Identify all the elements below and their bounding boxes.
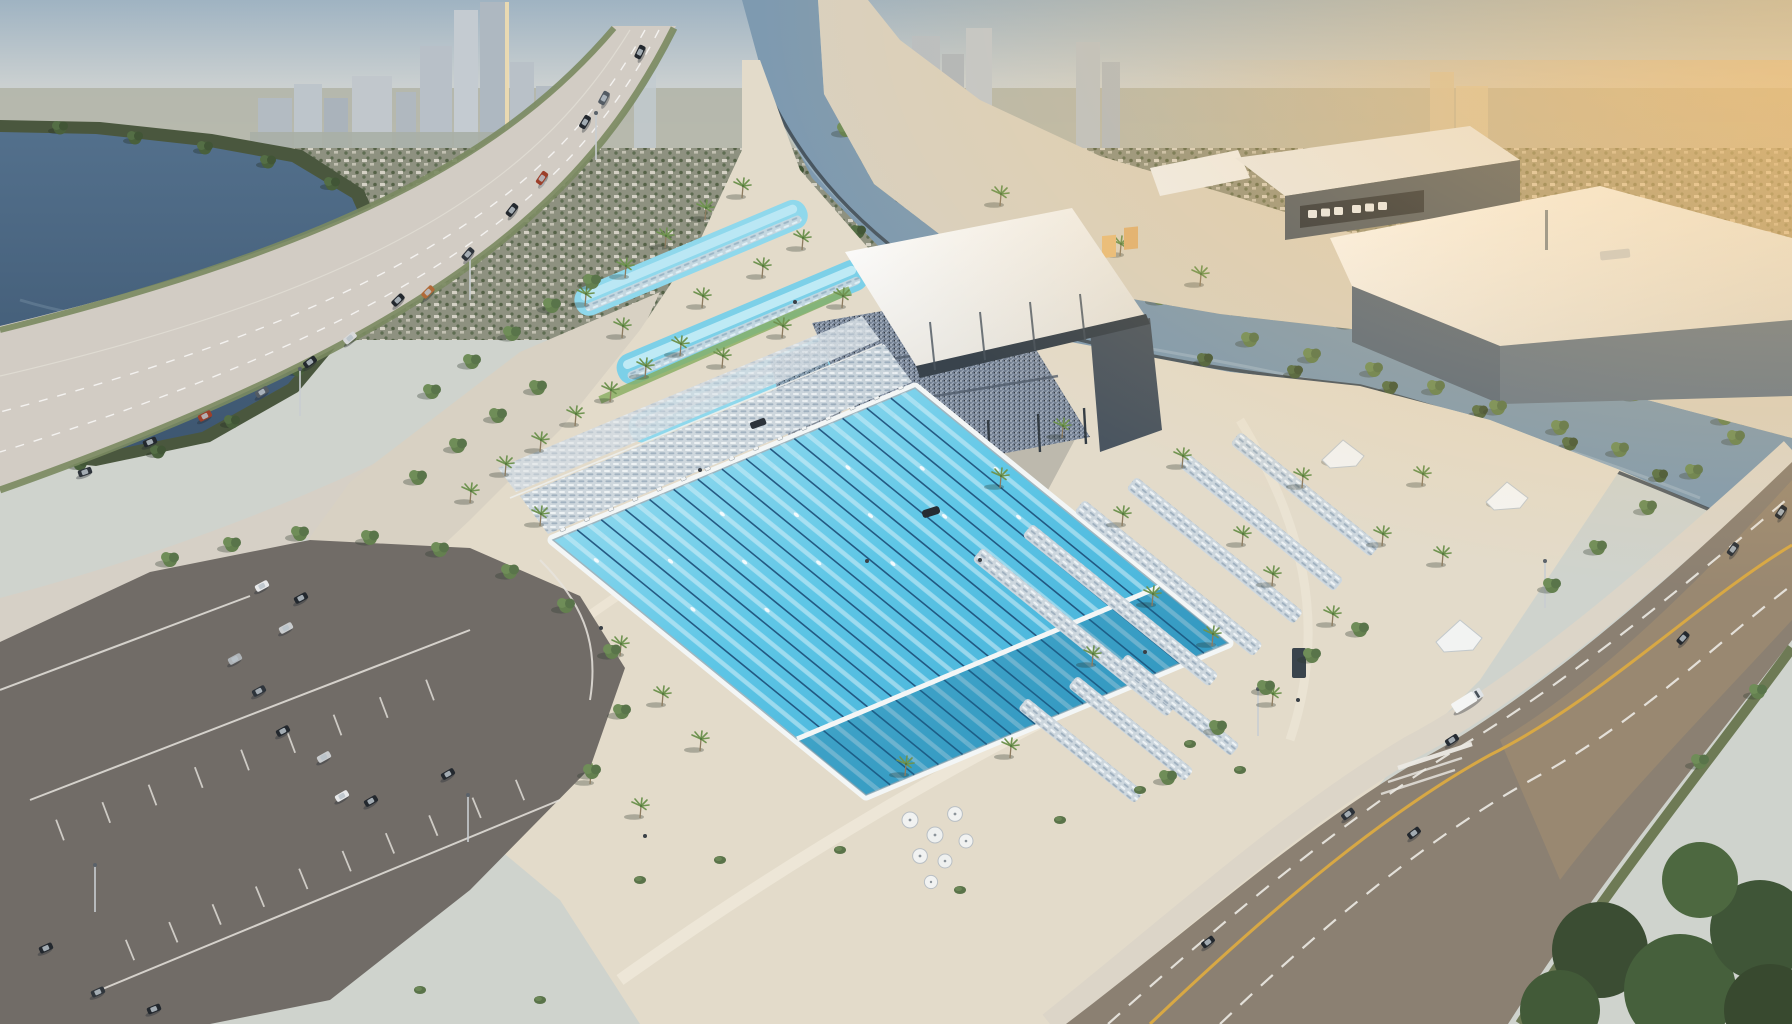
parking-lot xyxy=(0,540,625,1024)
warm-glass xyxy=(1102,235,1116,258)
roof-mast xyxy=(1545,210,1548,250)
umbrella xyxy=(902,812,918,828)
umbrella xyxy=(924,875,937,888)
aerial-render-stage xyxy=(0,0,1792,1024)
grandstand-end-wall xyxy=(1090,318,1162,452)
aquatic-center-scene xyxy=(0,0,1792,1024)
umbrella xyxy=(913,849,928,864)
warm-glass xyxy=(1124,226,1138,249)
umbrella xyxy=(959,834,973,848)
umbrella xyxy=(948,807,963,822)
umbrella xyxy=(938,854,952,868)
parking-asphalt xyxy=(0,540,625,1024)
umbrella xyxy=(927,827,943,843)
